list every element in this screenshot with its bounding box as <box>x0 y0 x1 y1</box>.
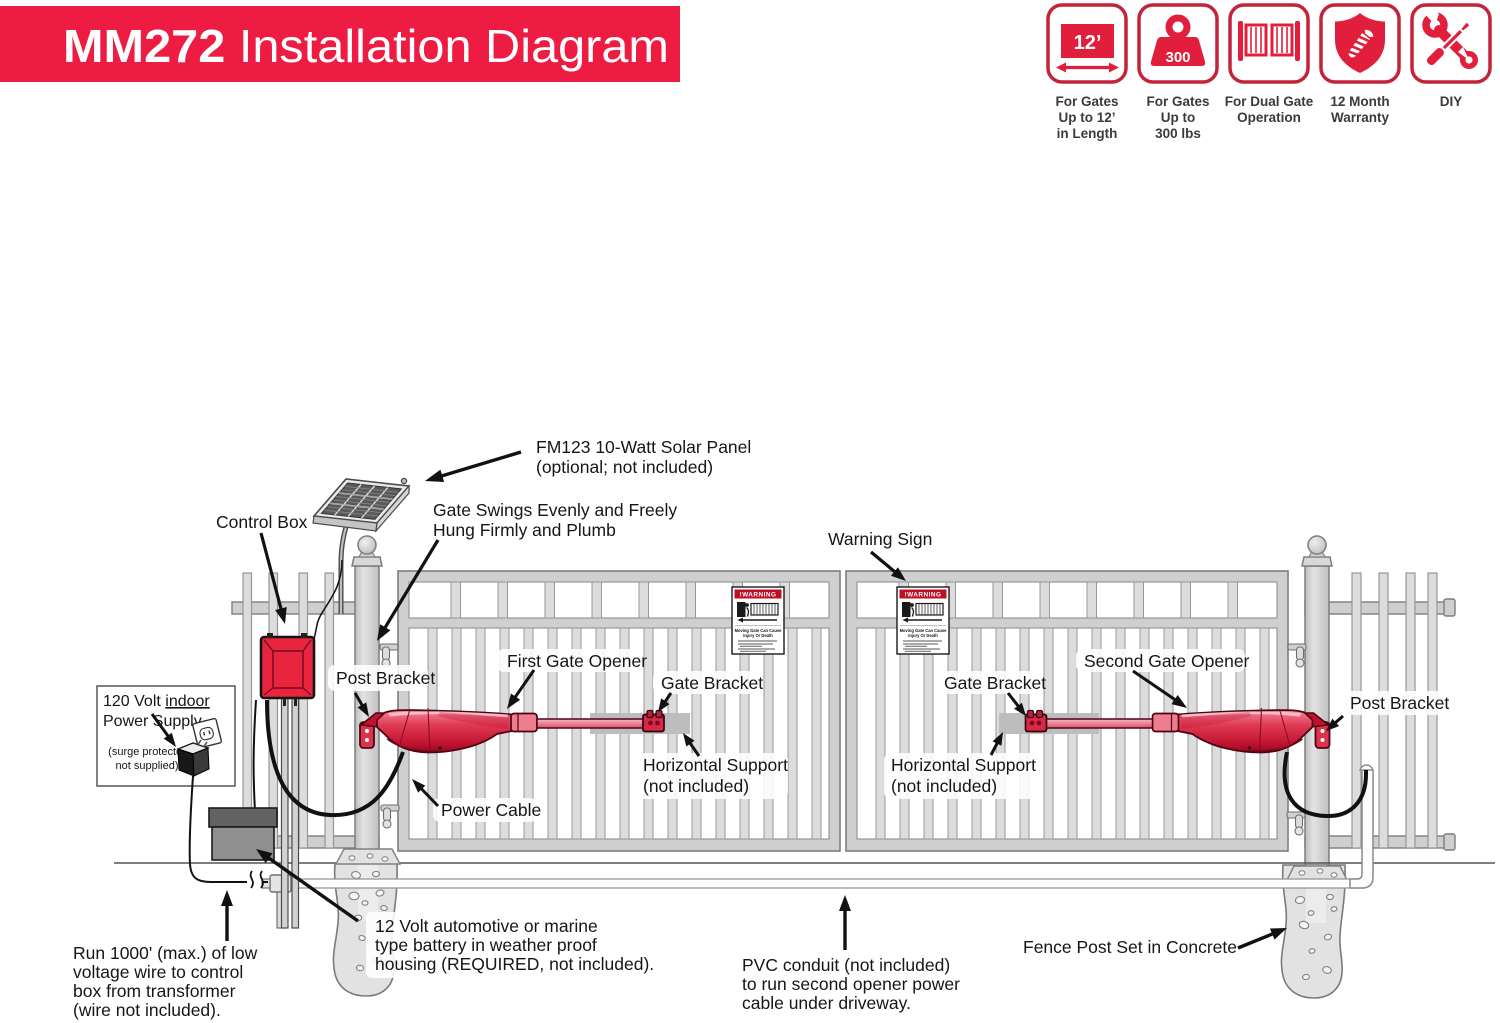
svg-text:120 Volt indoor: 120 Volt indoor <box>103 693 210 710</box>
svg-text:to run second opener power: to run second opener power <box>742 974 960 994</box>
svg-text:housing (REQUIRED, not include: housing (REQUIRED, not included). <box>375 954 654 974</box>
svg-text:300 lbs: 300 lbs <box>1155 126 1201 141</box>
svg-text:Gate Swings Evenly and Freely: Gate Swings Evenly and Freely <box>433 500 677 520</box>
svg-text:type battery in weather proof: type battery in weather proof <box>375 935 597 955</box>
svg-text:DIY: DIY <box>1440 94 1463 109</box>
svg-text:(optional; not included): (optional; not included) <box>536 457 713 477</box>
svg-text:Power Cable: Power Cable <box>441 800 541 820</box>
svg-text:12 Volt automotive or marine: 12 Volt automotive or marine <box>375 916 598 936</box>
svg-text:12 Month: 12 Month <box>1330 94 1389 109</box>
svg-text:Control Box: Control Box <box>216 512 308 532</box>
svg-text:Second Gate Opener: Second Gate Opener <box>1084 651 1250 671</box>
svg-text:For Gates: For Gates <box>1146 94 1209 109</box>
svg-text:not supplied): not supplied) <box>116 760 179 772</box>
svg-text:Up to: Up to <box>1161 110 1196 125</box>
svg-text:For Gates: For Gates <box>1055 94 1118 109</box>
svg-text:12’: 12’ <box>1074 32 1102 54</box>
svg-text:voltage wire to control: voltage wire to control <box>73 962 243 982</box>
svg-text:cable under driveway.: cable under driveway. <box>742 993 911 1013</box>
svg-text:Warranty: Warranty <box>1331 110 1390 125</box>
svg-text:Horizontal Support: Horizontal Support <box>891 755 1036 775</box>
svg-text:MM272 Installation Diagram: MM272 Installation Diagram <box>63 20 669 72</box>
svg-text:(surge protector: (surge protector <box>108 746 186 758</box>
svg-text:300: 300 <box>1165 49 1190 66</box>
svg-text:box from transformer: box from transformer <box>73 981 236 1001</box>
svg-text:Fence Post Set in Concrete: Fence Post Set in Concrete <box>1023 937 1237 957</box>
svg-text:First Gate Opener: First Gate Opener <box>507 651 647 671</box>
svg-text:PVC conduit (not included): PVC conduit (not included) <box>742 955 950 975</box>
svg-text:Gate Bracket: Gate Bracket <box>661 673 763 693</box>
svg-text:Post Bracket: Post Bracket <box>336 668 435 688</box>
svg-text:FM123 10-Watt Solar Panel: FM123 10-Watt Solar Panel <box>536 437 751 457</box>
svg-text:Hung Firmly and Plumb: Hung Firmly and Plumb <box>433 520 616 540</box>
svg-text:Horizontal Support: Horizontal Support <box>643 755 788 775</box>
svg-text:in Length: in Length <box>1057 126 1118 141</box>
svg-text:Operation: Operation <box>1237 110 1301 125</box>
svg-text:(not included): (not included) <box>643 776 749 796</box>
svg-text:Gate Bracket: Gate Bracket <box>944 673 1046 693</box>
svg-text:Warning Sign: Warning Sign <box>828 529 932 549</box>
svg-text:(not included): (not included) <box>891 776 997 796</box>
svg-text:For Dual Gate: For Dual Gate <box>1225 94 1314 109</box>
svg-text:Post Bracket: Post Bracket <box>1350 693 1449 713</box>
svg-text:Up to 12’: Up to 12’ <box>1058 110 1115 125</box>
svg-text:(wire not included).: (wire not included). <box>73 1000 221 1020</box>
svg-text:Run 1000' (max.) of low: Run 1000' (max.) of low <box>73 943 258 963</box>
